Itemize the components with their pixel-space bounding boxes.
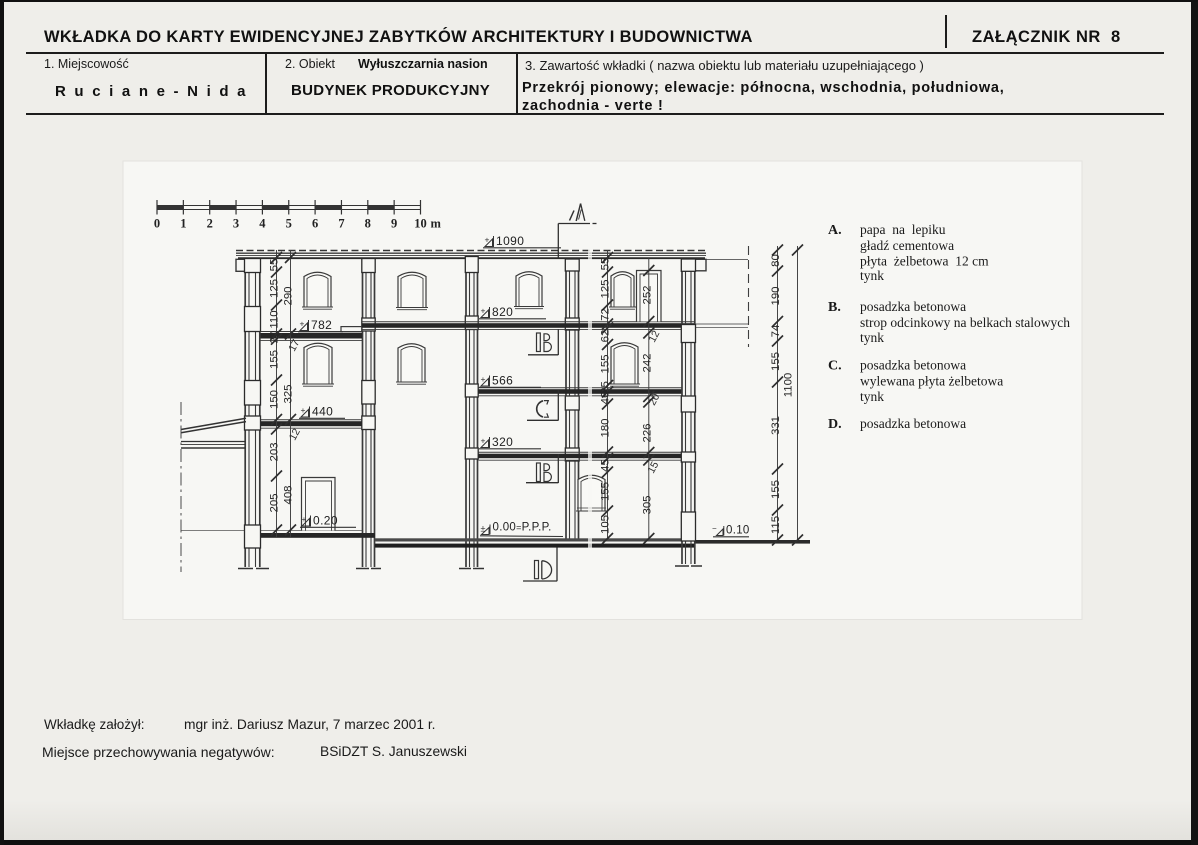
svg-text:−: −: [712, 524, 717, 533]
svg-text:820: 820: [492, 305, 513, 319]
svg-text:+: +: [302, 514, 307, 524]
svg-text:A.: A.: [828, 223, 842, 238]
svg-text:posadzka betonowa: posadzka betonowa: [860, 358, 966, 373]
svg-text:440: 440: [312, 405, 333, 419]
svg-text:papa na lepiku: papa na lepiku: [860, 222, 946, 237]
svg-text:+: +: [481, 436, 486, 446]
svg-text:125: 125: [269, 279, 281, 298]
svg-text:B.: B.: [828, 300, 841, 315]
svg-text:wylewana płyta żelbetowa: wylewana płyta żelbetowa: [860, 374, 1003, 389]
svg-text:325: 325: [283, 384, 295, 403]
svg-text:408: 408: [283, 485, 295, 504]
svg-text:566: 566: [492, 374, 513, 388]
svg-text:płyta żelbetowa 12 cm: płyta żelbetowa 12 cm: [860, 254, 989, 269]
svg-text:gładź cementowa: gładź cementowa: [860, 238, 954, 253]
svg-text:+: +: [301, 405, 306, 415]
svg-text:115: 115: [770, 516, 782, 534]
svg-text:74: 74: [770, 325, 782, 338]
svg-text:8: 8: [365, 217, 371, 231]
svg-text:155: 155: [600, 482, 612, 501]
svg-text:7: 7: [338, 217, 344, 231]
svg-text:5: 5: [286, 217, 292, 231]
svg-text:0.10: 0.10: [726, 525, 750, 537]
svg-text:1100: 1100: [783, 373, 795, 398]
svg-text:20: 20: [269, 331, 281, 344]
svg-text:1090: 1090: [496, 234, 524, 248]
svg-text:tynk: tynk: [860, 268, 884, 283]
svg-text:posadzka betonowa: posadzka betonowa: [860, 299, 966, 314]
svg-text:0: 0: [154, 217, 160, 231]
svg-text:strop odcinkowy na belkach sta: strop odcinkowy na belkach stalowych: [860, 315, 1070, 330]
svg-text:m: m: [431, 217, 442, 231]
svg-text:125: 125: [600, 279, 612, 298]
svg-text:4: 4: [259, 217, 266, 231]
svg-text:242: 242: [642, 353, 654, 372]
svg-text:46: 46: [600, 392, 612, 405]
svg-text:45: 45: [600, 459, 612, 472]
svg-text:190: 190: [770, 286, 782, 305]
svg-text:tynk: tynk: [860, 389, 884, 404]
svg-text:+: +: [485, 235, 490, 245]
svg-text:305: 305: [642, 495, 654, 514]
svg-text:155: 155: [600, 354, 612, 373]
svg-text:+: +: [481, 374, 486, 384]
svg-text:150: 150: [269, 390, 281, 409]
svg-text:55: 55: [600, 258, 612, 271]
svg-text:55: 55: [269, 259, 281, 272]
svg-text:155: 155: [269, 350, 281, 369]
svg-text:72: 72: [600, 308, 612, 321]
svg-text:180: 180: [600, 418, 612, 437]
svg-text:10: 10: [414, 217, 427, 231]
svg-text:203: 203: [269, 442, 281, 461]
svg-text:155: 155: [770, 480, 782, 499]
svg-text:105: 105: [600, 515, 612, 534]
svg-text:331: 331: [770, 416, 782, 435]
svg-text:posadzka betonowa: posadzka betonowa: [860, 416, 966, 431]
svg-text:D.: D.: [828, 417, 842, 432]
svg-text:110: 110: [269, 310, 281, 328]
svg-text:155: 155: [770, 352, 782, 371]
svg-text:3: 3: [233, 217, 239, 231]
svg-text:tynk: tynk: [860, 330, 884, 345]
svg-text:226: 226: [642, 423, 654, 442]
svg-text:6: 6: [312, 217, 318, 231]
svg-text:±: ±: [481, 524, 486, 534]
svg-text:80: 80: [770, 254, 782, 267]
svg-text:290: 290: [283, 286, 295, 305]
svg-text:320: 320: [492, 435, 513, 449]
svg-text:1: 1: [180, 217, 186, 231]
svg-text:C.: C.: [828, 359, 842, 374]
svg-text:+: +: [481, 306, 486, 316]
svg-text:205: 205: [269, 493, 281, 512]
svg-text:0.00=P.P.P.: 0.00=P.P.P.: [493, 522, 552, 534]
svg-text:782: 782: [311, 318, 332, 332]
svg-text:252: 252: [642, 285, 654, 304]
svg-text:9: 9: [391, 217, 397, 231]
svg-text:62: 62: [600, 330, 612, 343]
svg-text:+: +: [300, 319, 305, 329]
svg-text:0.20: 0.20: [313, 514, 338, 528]
svg-text:2: 2: [207, 217, 213, 231]
